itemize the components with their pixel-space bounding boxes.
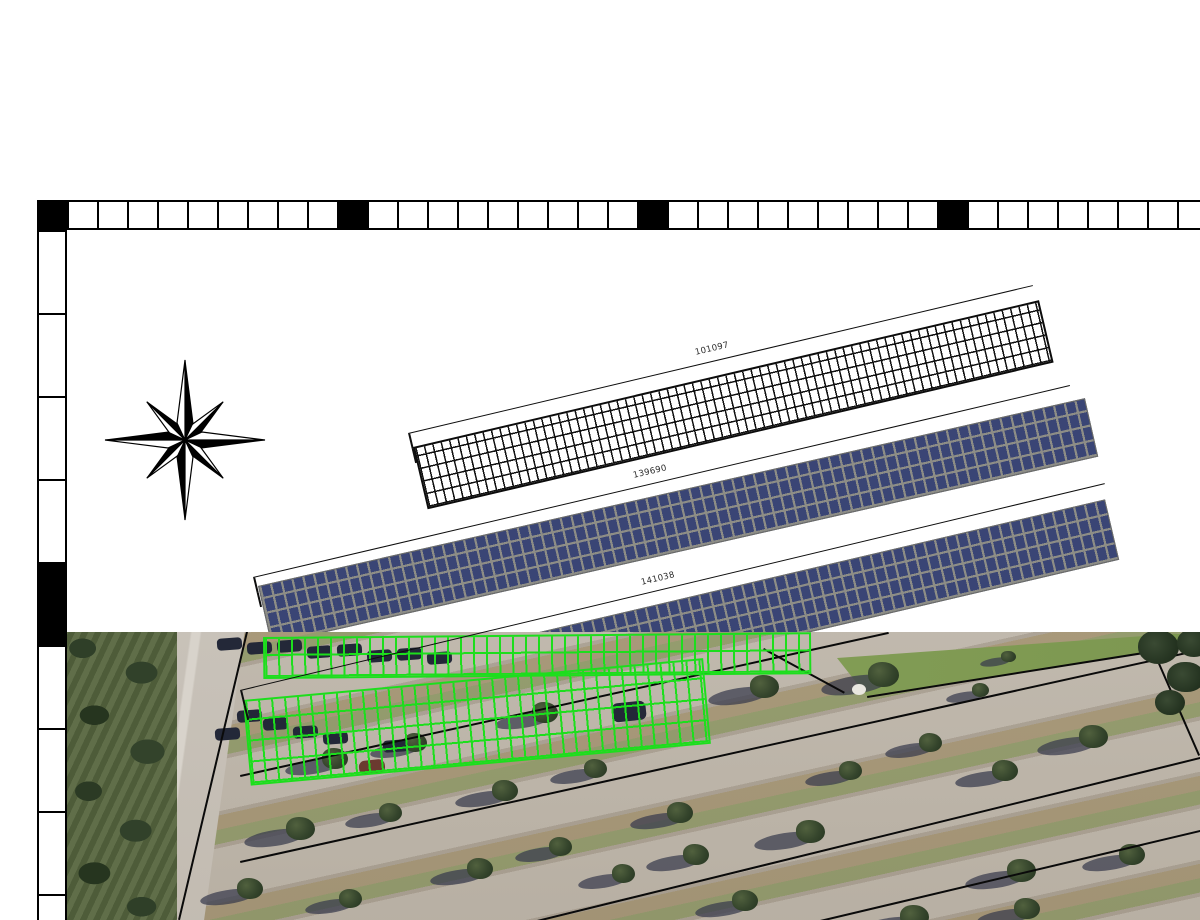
dimension-tick — [408, 434, 413, 449]
frame-tick — [37, 562, 67, 647]
orchard-tree — [1014, 898, 1040, 919]
frame-tick — [487, 200, 519, 230]
orchard-tree — [750, 675, 779, 698]
frame-tick — [187, 200, 219, 230]
orchard-tree — [379, 803, 402, 821]
frame-tick — [547, 200, 579, 230]
orchard-tree — [992, 760, 1018, 781]
frame-tick — [577, 200, 609, 230]
orchard-tree — [339, 889, 362, 907]
orchard-tree — [584, 759, 607, 777]
frame-tick — [37, 479, 67, 564]
dimension-label-2: 139690 — [632, 463, 668, 481]
frame-tick — [787, 200, 819, 230]
orchard-tree — [492, 780, 518, 801]
orchard-tree — [868, 662, 900, 687]
aerial-photo — [67, 632, 1200, 920]
orchard-tree — [732, 890, 758, 911]
frame-tick — [67, 200, 99, 230]
frame-tick — [517, 200, 549, 230]
frame-tick — [427, 200, 459, 230]
frame-tick — [607, 200, 639, 230]
corner-tree — [1167, 662, 1200, 693]
frame-left-scale — [0, 0, 67, 920]
frame-tick — [907, 200, 939, 230]
light-object — [852, 684, 866, 695]
frame-tick — [847, 200, 879, 230]
frame-tick — [1177, 200, 1200, 230]
orchard-tree — [1079, 725, 1108, 748]
frame-tick — [37, 811, 67, 896]
corner-tree — [1138, 632, 1179, 664]
compass-rose — [95, 350, 275, 530]
frame-tick — [817, 200, 849, 230]
frame-tick — [307, 200, 339, 230]
frame-tick — [667, 200, 699, 230]
site-plan-sheet: 101097139690141038 — [0, 0, 1200, 920]
orchard-tree — [919, 733, 942, 751]
frame-tick — [1117, 200, 1149, 230]
tree-strip — [67, 632, 177, 920]
orchard-tree — [1001, 651, 1016, 663]
frame-tick — [247, 200, 279, 230]
frame-tick — [337, 200, 369, 230]
frame-tick — [37, 645, 67, 730]
parked-car — [217, 637, 243, 651]
dimension-label-3: 141038 — [640, 570, 676, 588]
orchard-tree — [549, 837, 572, 855]
frame-tick — [967, 200, 999, 230]
frame-tick — [1057, 200, 1089, 230]
frame-tick — [217, 200, 249, 230]
frame-tick — [937, 200, 969, 230]
green-panel-overlay-1 — [263, 632, 811, 679]
frame-tick — [37, 396, 67, 481]
orchard-tree — [667, 802, 693, 823]
orchard-tree — [683, 844, 709, 865]
parked-car — [215, 727, 241, 741]
frame-tick — [1087, 200, 1119, 230]
frame-tick — [757, 200, 789, 230]
frame-tick — [877, 200, 909, 230]
orchard-tree — [796, 820, 825, 843]
frame-tick — [727, 200, 759, 230]
frame-tick — [367, 200, 399, 230]
frame-tick — [97, 200, 129, 230]
orchard-tree — [612, 864, 635, 882]
orchard-tree — [467, 858, 493, 879]
dimension-label-1: 101097 — [694, 340, 730, 358]
frame-tick — [457, 200, 489, 230]
frame-tick — [1027, 200, 1059, 230]
orchard-tree — [286, 817, 315, 840]
orchard-tree — [839, 761, 862, 779]
frame-tick — [127, 200, 159, 230]
frame-tick — [37, 230, 67, 315]
frame-top-scale — [0, 0, 1200, 230]
frame-tick — [157, 200, 189, 230]
frame-tick — [397, 200, 429, 230]
frame-tick — [1147, 200, 1179, 230]
frame-tick — [37, 313, 67, 398]
frame-tick — [37, 728, 67, 813]
frame-tick — [697, 200, 729, 230]
frame-tick — [37, 894, 67, 920]
frame-tick — [277, 200, 309, 230]
orchard-tree — [237, 878, 263, 899]
frame-tick — [637, 200, 669, 230]
frame-tick — [997, 200, 1029, 230]
